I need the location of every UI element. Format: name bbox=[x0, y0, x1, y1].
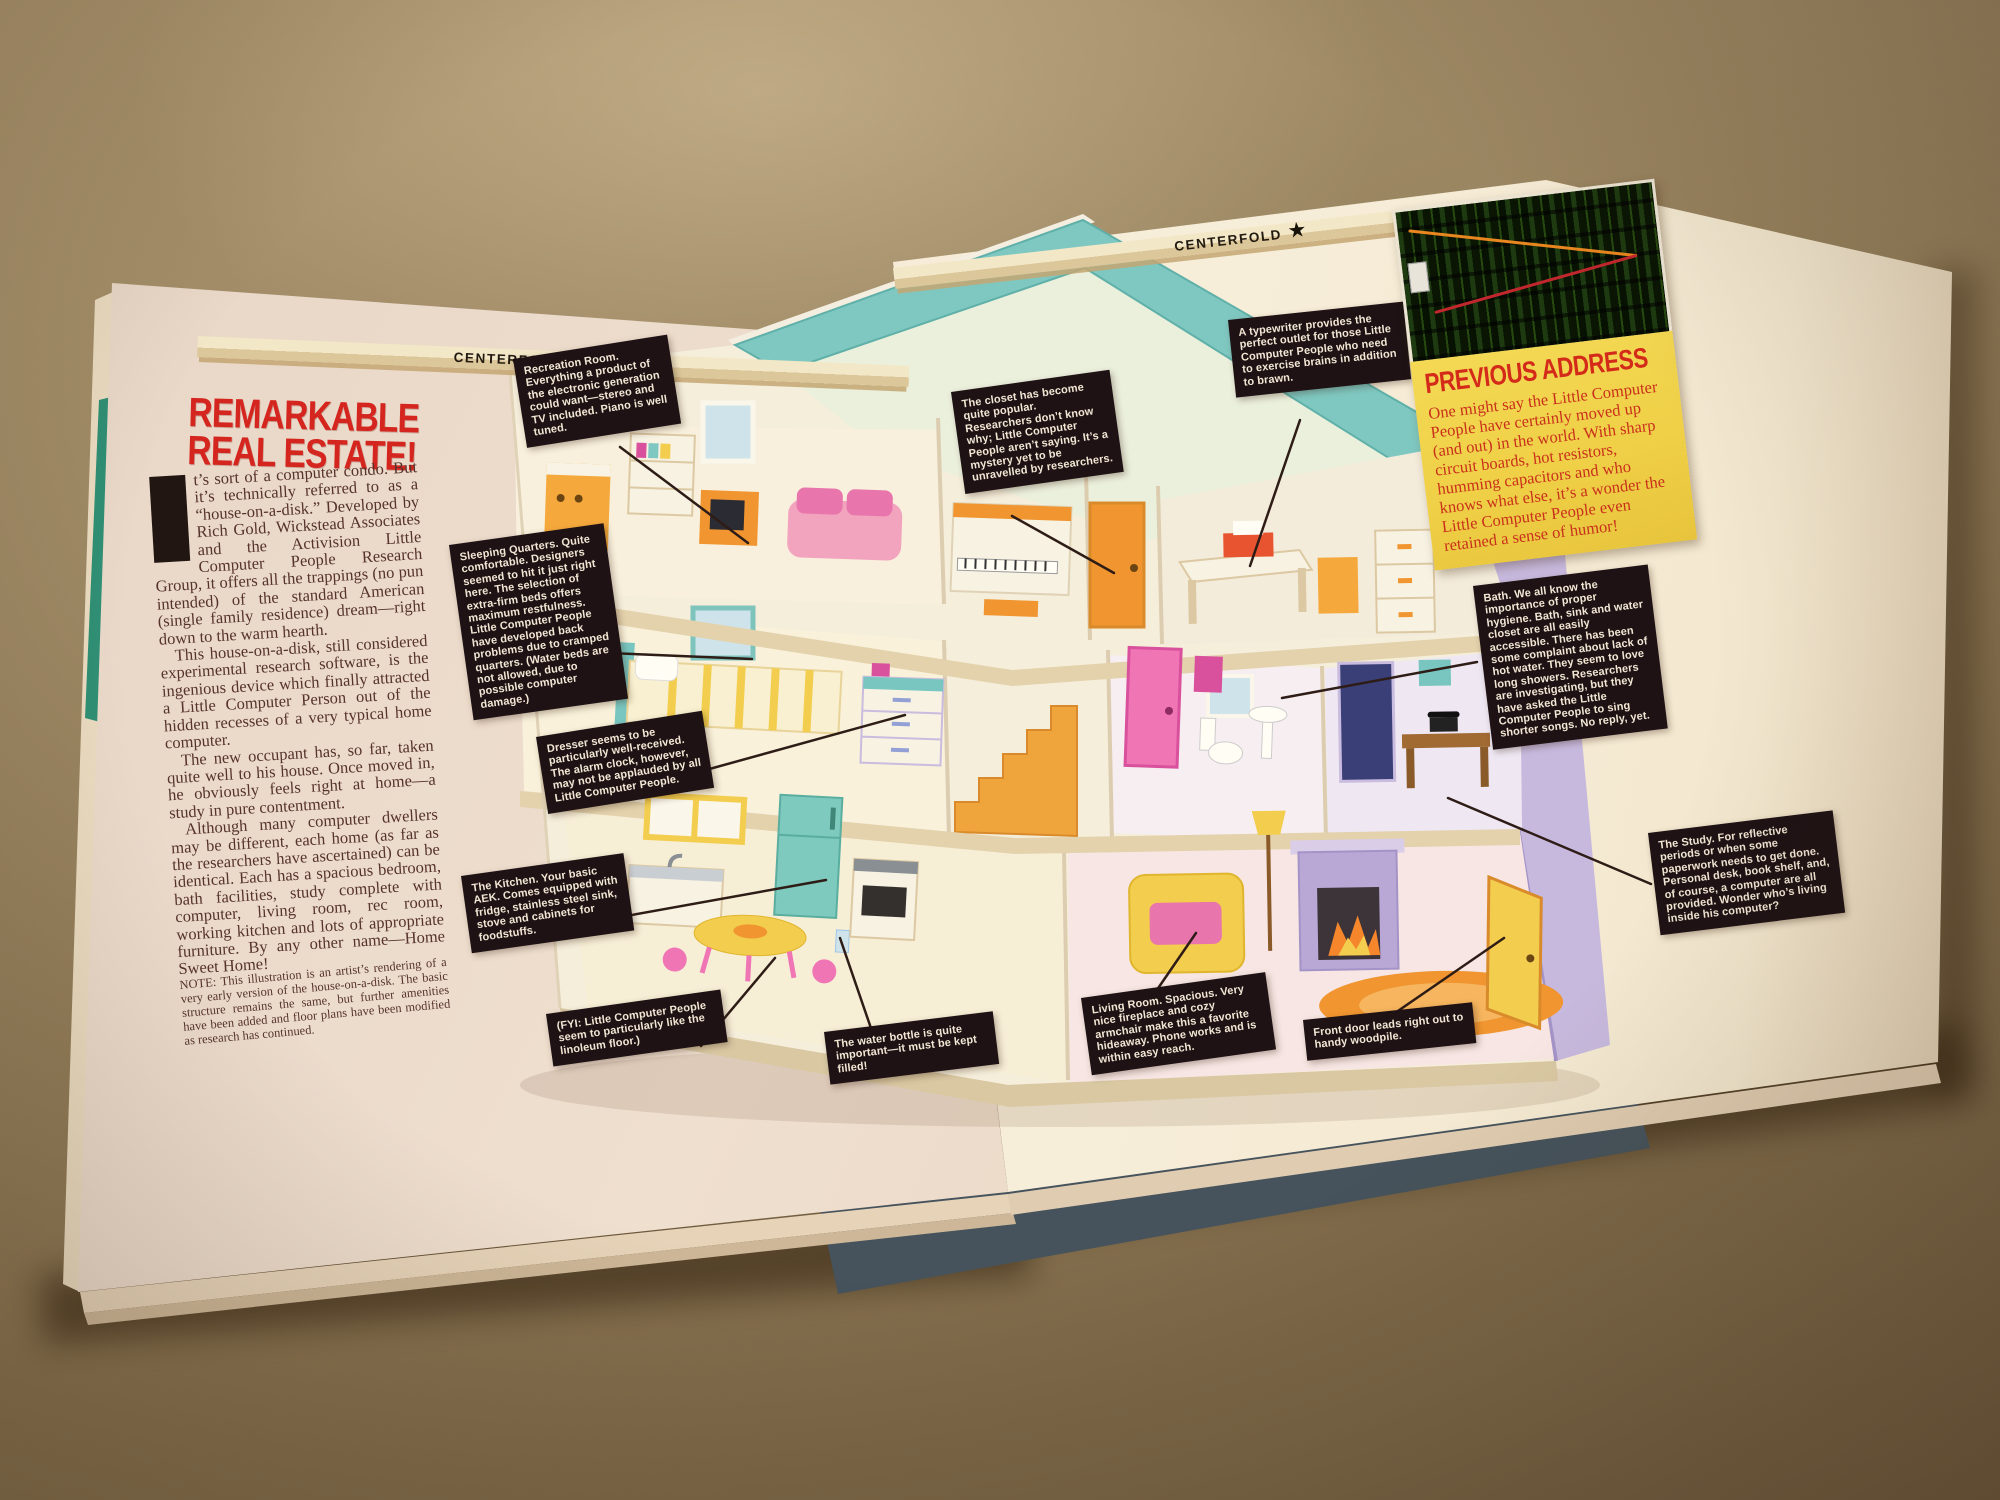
study-desk bbox=[1402, 733, 1490, 749]
bathroom-door bbox=[1125, 647, 1181, 767]
star-icon: ★ bbox=[1286, 217, 1308, 244]
dresser-furniture bbox=[860, 663, 943, 766]
dark-door bbox=[1339, 662, 1395, 781]
alarm-clock bbox=[872, 663, 890, 677]
front-door bbox=[1485, 876, 1544, 1029]
drop-cap: I bbox=[149, 475, 190, 563]
circuit-connector bbox=[1407, 261, 1429, 293]
article-paragraph: This house-on-a-disk, still considered e… bbox=[159, 632, 433, 752]
desk-chair bbox=[1318, 557, 1359, 614]
callout-sleeping-quarters: Sleeping Quarters. Quite comfortable. De… bbox=[449, 523, 628, 720]
photo-of-magazine-centerfold: CENTERFOLD ★ CENTERFOLD ★ REMARKABLE REA… bbox=[0, 0, 2000, 1500]
previous-address-unit: PREVIOUS ADDRESS One might say the Littl… bbox=[1392, 179, 1697, 571]
article-paragraph-text: t’s sort of a computer condo. But it’s t… bbox=[155, 457, 426, 648]
typewriter bbox=[1223, 532, 1273, 557]
callout-closet: The closet has become quite popular. Res… bbox=[951, 370, 1124, 494]
circuit-wire-red bbox=[1434, 254, 1637, 314]
wall-art bbox=[1194, 656, 1223, 693]
circuit-wire-orange bbox=[1408, 229, 1637, 257]
previous-address-note: PREVIOUS ADDRESS One might say the Littl… bbox=[1410, 331, 1697, 571]
telephone bbox=[1430, 717, 1458, 731]
article-paragraph: It’s sort of a computer condo. But it’s … bbox=[149, 458, 427, 648]
article-paragraph: Although many computer dwellers may be d… bbox=[170, 806, 447, 978]
circuit-board-photo bbox=[1392, 179, 1672, 362]
pillow bbox=[635, 653, 678, 681]
article-column: It’s sort of a computer condo. But it’s … bbox=[149, 458, 451, 1048]
callout-bath: Bath. We all know the importance of prop… bbox=[1473, 565, 1668, 750]
previous-address-body: One might say the Little Computer People… bbox=[1427, 376, 1681, 555]
